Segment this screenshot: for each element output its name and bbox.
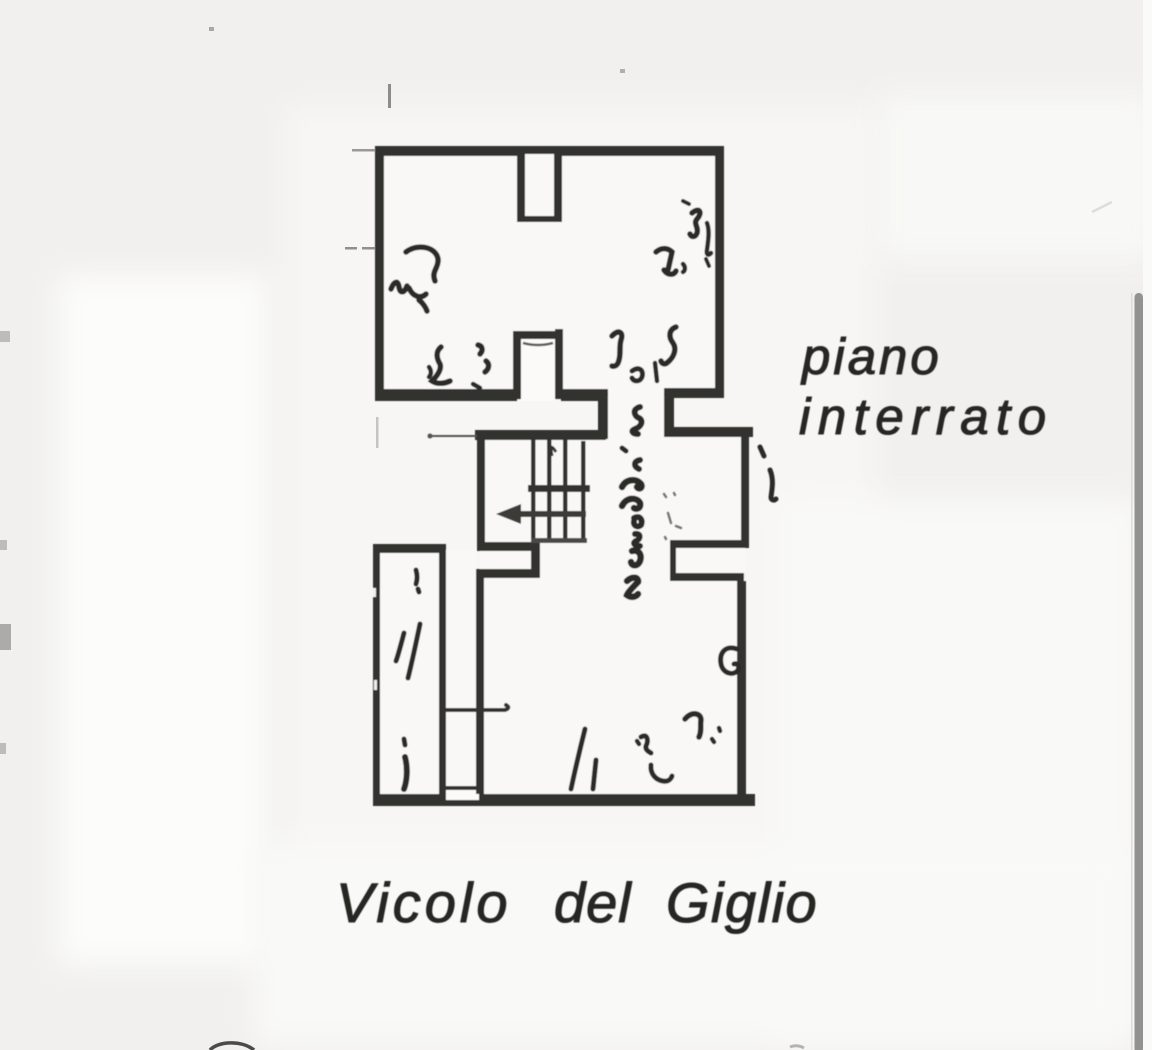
svg-text:interrato: interrato	[799, 388, 1054, 445]
svg-text:Vicolo: Vicolo	[336, 871, 512, 934]
svg-text:Giglio: Giglio	[666, 871, 818, 934]
svg-text:del: del	[554, 871, 632, 934]
svg-text:piano: piano	[800, 328, 942, 385]
